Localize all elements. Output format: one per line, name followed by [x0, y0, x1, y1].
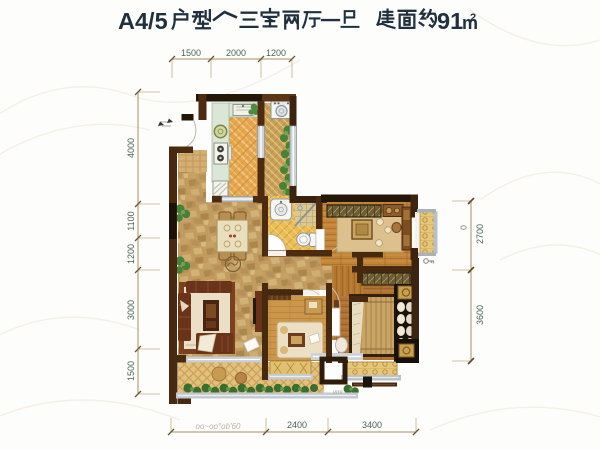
svg-text:1100: 1100: [126, 211, 136, 230]
svg-text:1200: 1200: [126, 244, 136, 264]
svg-text:oo~oo°ob'60: oo~oo°ob'60: [196, 422, 242, 431]
svg-text:vml: vml: [333, 390, 343, 396]
svg-text:2400: 2400: [287, 420, 307, 430]
svg-text:1200: 1200: [266, 48, 286, 58]
svg-text:2000: 2000: [226, 48, 246, 58]
svg-text:3400: 3400: [362, 420, 382, 430]
svg-text:1500: 1500: [126, 361, 136, 381]
svg-text:3000: 3000: [126, 300, 136, 320]
svg-text:91: 91: [437, 8, 463, 34]
svg-text:4000: 4000: [126, 138, 136, 158]
svg-text:2: 2: [470, 12, 476, 24]
svg-text:1500: 1500: [181, 48, 201, 58]
svg-text:2700: 2700: [475, 224, 485, 244]
svg-text:3600: 3600: [475, 305, 485, 325]
svg-text:A4/5: A4/5: [118, 8, 168, 34]
